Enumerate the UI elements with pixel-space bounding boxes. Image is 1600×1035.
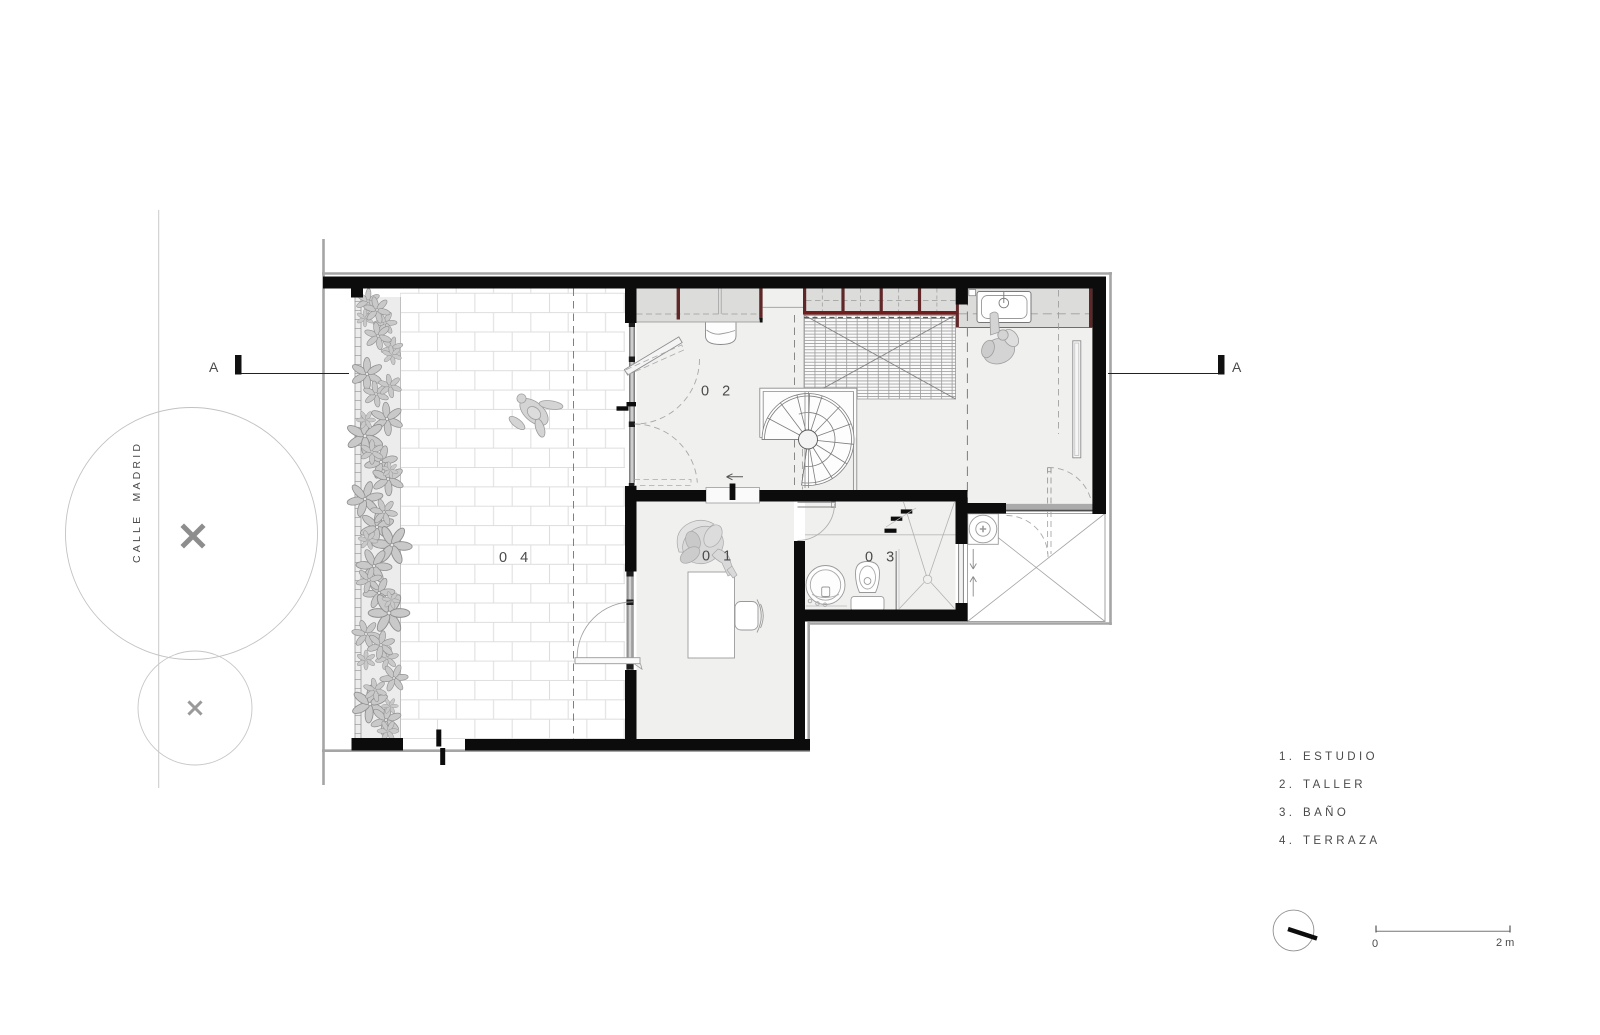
- svg-text:1.: 1.: [1279, 751, 1295, 763]
- svg-text:A: A: [209, 359, 219, 375]
- svg-text:2.: 2.: [1279, 779, 1295, 791]
- svg-text:2 m: 2 m: [1496, 937, 1514, 949]
- svg-text:4.: 4.: [1279, 835, 1295, 847]
- svg-text:0: 0: [1372, 938, 1378, 950]
- svg-text:0 4: 0 4: [499, 550, 533, 566]
- svg-text:0 3: 0 3: [865, 550, 899, 566]
- svg-text:0 2: 0 2: [701, 384, 735, 400]
- svg-text:3.: 3.: [1279, 807, 1295, 819]
- svg-text:ESTUDIO: ESTUDIO: [1303, 751, 1378, 763]
- svg-text:BAÑO: BAÑO: [1303, 806, 1349, 819]
- svg-text:0 1: 0 1: [702, 549, 736, 565]
- svg-text:A: A: [1232, 359, 1242, 375]
- svg-text:TERRAZA: TERRAZA: [1303, 835, 1380, 847]
- svg-text:TALLER: TALLER: [1303, 779, 1366, 791]
- svg-text:CALLE MADRID: CALLE MADRID: [131, 441, 143, 563]
